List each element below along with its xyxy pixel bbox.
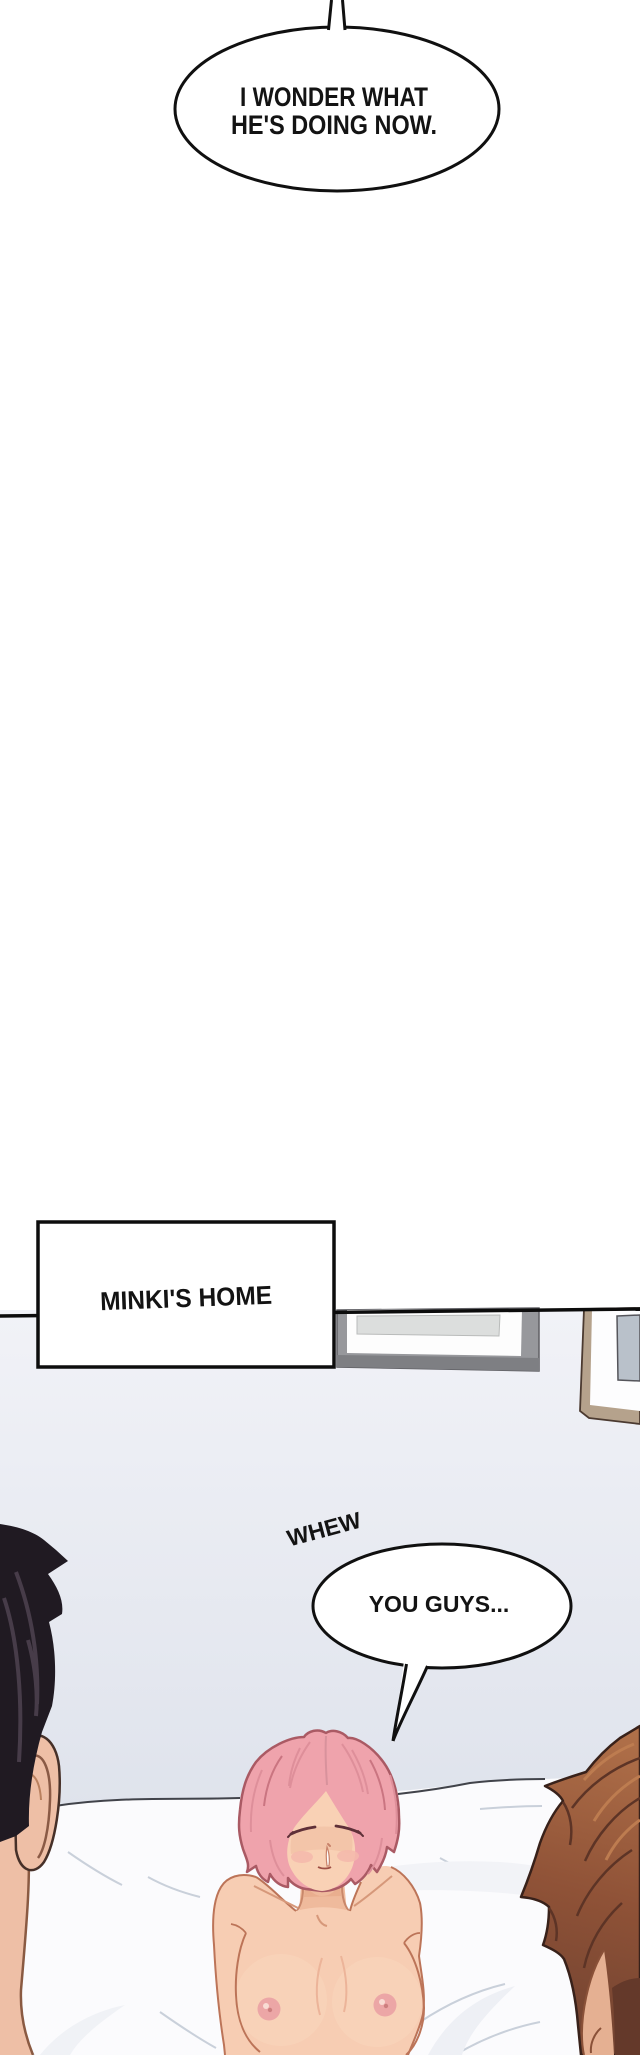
svg-text:YOU GUYS...: YOU GUYS... <box>369 1591 510 1617</box>
svg-text:HE'S DOING NOW.: HE'S DOING NOW. <box>231 110 437 140</box>
svg-text:I WONDER WHAT: I WONDER WHAT <box>240 82 428 112</box>
